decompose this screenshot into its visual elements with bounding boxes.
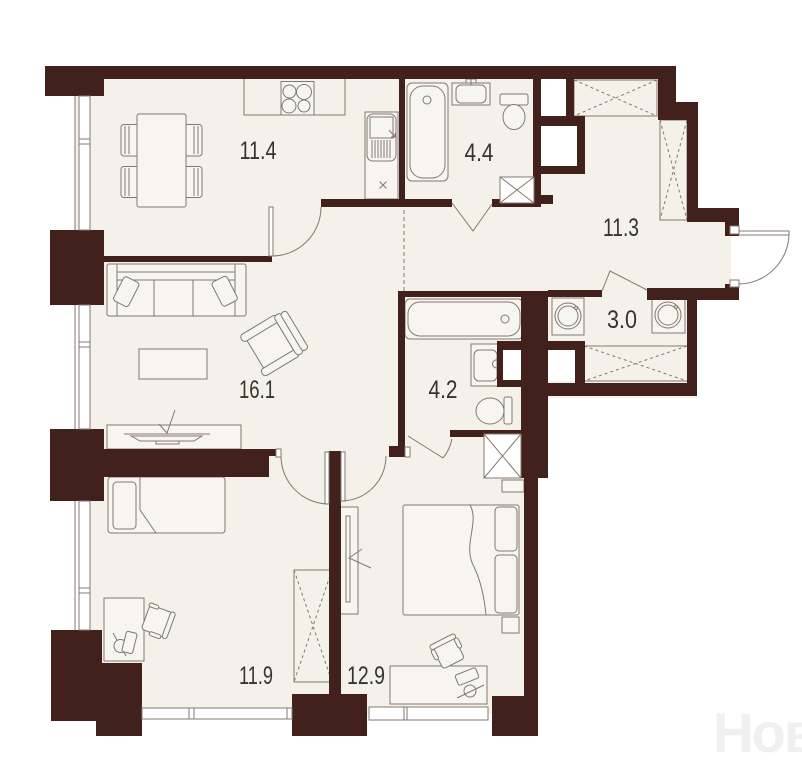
svg-text:11.3: 11.3: [603, 214, 639, 242]
svg-text:3.0: 3.0: [607, 306, 637, 334]
svg-text:Новост: Новост: [713, 701, 802, 764]
svg-text:11.9: 11.9: [239, 662, 273, 690]
svg-text:12.9: 12.9: [347, 662, 385, 690]
svg-text:11.4: 11.4: [240, 137, 277, 165]
svg-text:4.4: 4.4: [465, 139, 494, 167]
svg-text:4.2: 4.2: [429, 376, 458, 404]
svg-text:16.1: 16.1: [239, 376, 275, 404]
